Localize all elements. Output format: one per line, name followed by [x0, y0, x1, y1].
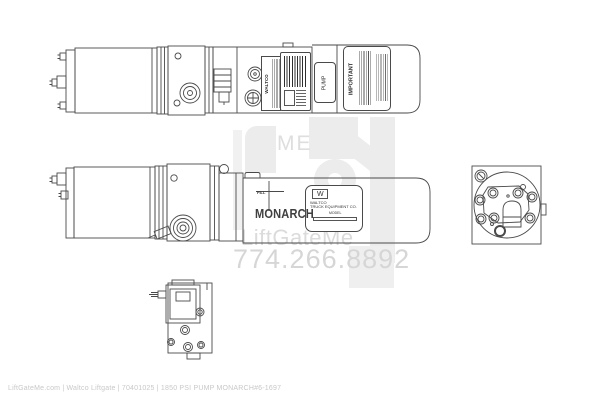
barcode-label [280, 52, 311, 111]
barcode-fine-print-texture [296, 90, 306, 106]
fill-marker-label: FILL [257, 191, 265, 195]
important-label: IMPORTANT [343, 46, 391, 111]
barcode-text-box [284, 90, 295, 106]
instruction-fine-print-texture [272, 59, 280, 108]
waltco-vertical-text: WALTCO [265, 74, 270, 93]
monarch-brand-text: MONARCH [255, 207, 314, 220]
nameplate-logo-letter: W [317, 191, 324, 198]
footer-caption: LiftGateMe.com | Waltco Liftgate | 70401… [8, 385, 281, 392]
important-label-text: IMPORTANT [350, 62, 356, 94]
barcode-stripes [284, 56, 307, 87]
important-fine-print-texture-2 [376, 54, 388, 101]
pump-label-text: PUMP [323, 75, 328, 89]
important-fine-print-texture-1 [359, 51, 373, 105]
nameplate-company-line2: TRUCK EQUIPMENT CO. [310, 205, 357, 209]
nameplate-model-label: MODEL [329, 212, 341, 216]
pump-label: PUMP [314, 62, 336, 103]
nameplate-model-field [313, 217, 357, 221]
solenoid-valve-view [149, 280, 212, 359]
waltco-instruction-label: WALTCO [261, 56, 281, 111]
side-view [50, 164, 431, 243]
end-view [472, 166, 546, 244]
